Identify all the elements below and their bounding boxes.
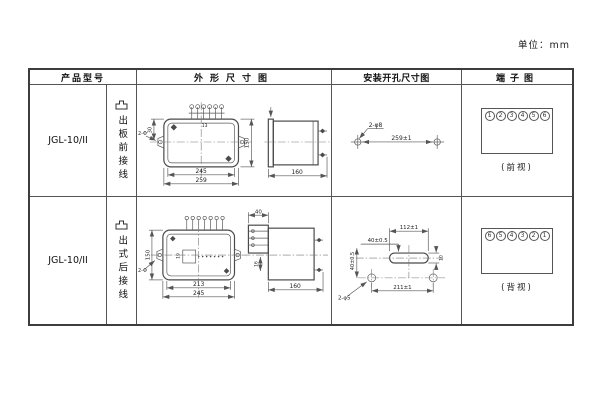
dim-depth: 160 bbox=[291, 169, 303, 176]
terminal-number: 4 bbox=[507, 231, 517, 241]
dimension-table: 产品型号 外形尺寸图 安装开孔尺寸图 端子图 JGL-10/II 出板前接线 bbox=[28, 68, 574, 326]
label-ear-holes: 2-Φ bbox=[138, 131, 147, 137]
dim-block-offset: 16 bbox=[253, 260, 259, 266]
dim-block-depth: 40 bbox=[255, 209, 262, 215]
terminal-view-caption: (背视) bbox=[501, 281, 533, 293]
outline-drawing-front-wiring: 245 259 150 30 2-Φ 13 bbox=[137, 85, 331, 196]
label-ear-holes: 2-Φ bbox=[138, 267, 147, 273]
wiring-cell-row2: 出式后接线 bbox=[107, 197, 137, 324]
convex-icon bbox=[115, 100, 128, 110]
terminal-number: 6 bbox=[540, 111, 550, 121]
mounting-drawing-cell-row1: 259±1 2-φ8 bbox=[332, 85, 462, 197]
dim-inner-detail: 19 bbox=[175, 253, 181, 259]
terminal-number: 1 bbox=[540, 231, 550, 241]
convex-icon bbox=[115, 220, 128, 230]
terminal-number: 5 bbox=[529, 111, 539, 121]
outline-drawing-cell-row2: 19 150 2-Φ bbox=[137, 197, 332, 324]
header-mounting-hole-drawing: 安装开孔尺寸图 bbox=[332, 70, 462, 85]
model-cell-row1: JGL-10/II bbox=[30, 85, 107, 197]
model-cell-row2: JGL-10/II bbox=[30, 197, 107, 324]
header-outline-drawing: 外形尺寸图 bbox=[137, 70, 332, 85]
mounting-holes-drawing-rear-wiring: 112±1 40±0.5 40±0.5 10 bbox=[332, 198, 461, 324]
dim-top-to-ear: 30 bbox=[147, 127, 153, 133]
label-hole-size: 2-φ8 bbox=[369, 122, 383, 129]
dim-slot-offset: 40±0.5 bbox=[368, 238, 388, 244]
dim-vertical-offset: 40±0.5 bbox=[350, 251, 356, 269]
dim-width-inner: 213 bbox=[193, 281, 205, 288]
model-label: JGL-10/II bbox=[48, 135, 88, 146]
terminal-view-caption: (前视) bbox=[501, 161, 533, 173]
terminal-number: 2 bbox=[496, 111, 506, 121]
terminal-number: 4 bbox=[518, 111, 528, 121]
terminal-number: 3 bbox=[518, 231, 528, 241]
terminal-slot bbox=[356, 245, 443, 278]
dim-hole-spacing: 211±1 bbox=[393, 284, 411, 290]
dim-terminal-pitch: 13 bbox=[202, 123, 208, 129]
label-hole-size: 2-φ5 bbox=[338, 295, 350, 301]
wiring-label: 出式后接线 bbox=[117, 235, 127, 303]
terminal-diagram-cell-row1: 1 2 3 4 5 6 (前视) bbox=[462, 85, 572, 197]
outline-drawing-rear-wiring: 19 150 2-Φ bbox=[137, 198, 331, 324]
mounting-drawing-cell-row2: 112±1 40±0.5 40±0.5 10 bbox=[332, 197, 462, 324]
terminal-number: 2 bbox=[529, 231, 539, 241]
dim-hole-spacing: 259±1 bbox=[391, 135, 411, 142]
wiring-label: 出板前接线 bbox=[117, 115, 127, 183]
relay-front-view bbox=[150, 102, 252, 178]
terminal-block: 6 5 4 3 2 1 bbox=[481, 228, 553, 274]
model-label: JGL-10/II bbox=[48, 255, 88, 266]
dim-slot-width: 112±1 bbox=[400, 225, 418, 231]
dim-height: 150 bbox=[145, 249, 151, 260]
terminal-numbers: 6 5 4 3 2 1 bbox=[485, 231, 550, 241]
terminal-block: 1 2 3 4 5 6 bbox=[481, 108, 553, 154]
front-view-dimensions: 150 2-Φ 213 245 bbox=[138, 230, 235, 299]
dim-width-inner: 245 bbox=[195, 168, 207, 175]
front-view-dimensions: 245 259 150 30 2-Φ 13 bbox=[138, 119, 254, 186]
dim-height: 150 bbox=[244, 137, 250, 148]
header-terminal-diagram: 端子图 bbox=[462, 70, 572, 85]
wiring-cell-row1: 出板前接线 bbox=[107, 85, 137, 197]
dim-width-outer: 245 bbox=[193, 290, 205, 297]
dim-depth: 160 bbox=[289, 282, 301, 289]
terminal-number: 5 bbox=[496, 231, 506, 241]
terminal-diagram-cell-row2: 6 5 4 3 2 1 (背视) bbox=[462, 197, 572, 324]
mounting-holes-drawing-front-wiring: 259±1 2-φ8 bbox=[332, 85, 461, 196]
unit-label: 单位：mm bbox=[518, 37, 570, 51]
terminal-number: 3 bbox=[507, 111, 517, 121]
mounting-holes: 259±1 2-φ8 bbox=[351, 122, 444, 149]
header-product-model: 产品型号 bbox=[30, 70, 137, 85]
terminal-number: 6 bbox=[485, 231, 495, 241]
mounting-holes: 211±1 2-φ5 bbox=[338, 268, 445, 301]
relay-side-view: 40 16 160 bbox=[242, 209, 328, 291]
relay-side-view: 160 bbox=[264, 107, 330, 178]
terminal-numbers: 1 2 3 4 5 6 bbox=[485, 111, 550, 121]
terminal-number: 1 bbox=[485, 111, 495, 121]
outline-drawing-cell-row1: 245 259 150 30 2-Φ 13 bbox=[137, 85, 332, 197]
dim-slot-height: 10 bbox=[439, 255, 445, 261]
slot-dimensions: 112±1 40±0.5 40±0.5 10 bbox=[350, 225, 445, 278]
manual-page: 单位：mm 产品型号 外形尺寸图 安装开孔尺寸图 端子图 JGL-10/II 出… bbox=[0, 0, 600, 400]
dim-width-outer: 259 bbox=[195, 177, 207, 184]
